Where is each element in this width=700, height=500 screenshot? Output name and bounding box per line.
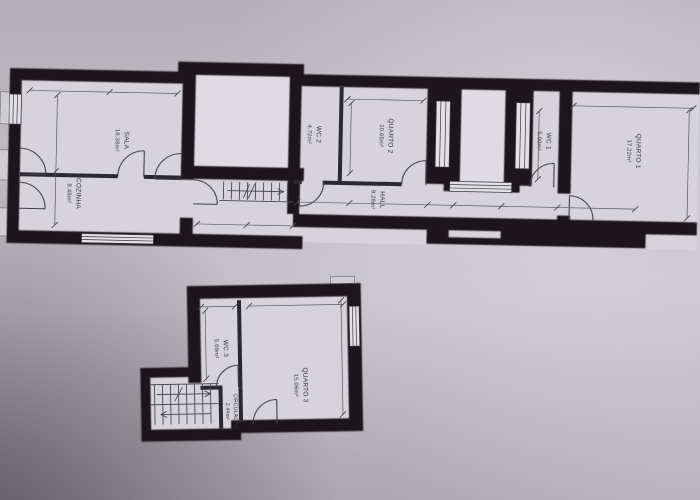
room-area-wc1: 5.00m² — [535, 131, 541, 151]
room-area-wc2: 4.72m² — [306, 124, 312, 144]
room-area-quarto1: 17.22m² — [625, 139, 631, 162]
room-area-wc3: 5.09m² — [213, 339, 219, 359]
room-area-hall: 9.28m² — [369, 190, 375, 210]
scanned-floor-plan-sheet: SALA 18.38m² COZINHA 8.48m² WC 2 4.72m² … — [0, 0, 700, 500]
room-name-sala: SALA — [122, 132, 129, 150]
room-name-hall: HALL — [378, 191, 385, 209]
floor-plan-drawing: SALA 18.38m² COZINHA 8.48m² WC 2 4.72m² … — [0, 0, 700, 500]
room-area-quarto3: 15.06m² — [292, 374, 298, 397]
upper-floor-plan: SALA 18.38m² COZINHA 8.48m² WC 2 4.72m² … — [0, 58, 700, 258]
room-area-quarto2: 10.65m² — [377, 124, 383, 147]
room-name-wc2: WC 2 — [315, 126, 322, 144]
room-name-wc1: WC 1 — [544, 133, 551, 151]
light-well — [460, 89, 508, 182]
lower-plan-interior — [139, 283, 364, 442]
room-name-circulacao: CIRCULAÇÃO — [232, 394, 240, 429]
room-area-cozinha: 8.48m² — [65, 183, 71, 203]
room-area-sala: 18.38m² — [113, 129, 119, 152]
room-name-cozinha: COZINHA — [74, 178, 82, 210]
room-area-circulacao: 2.44m² — [224, 403, 230, 420]
room-name-wc3: WC 3 — [222, 340, 229, 358]
courtyard-void — [194, 74, 290, 168]
room-name-quarto1: QUARTO 1 — [634, 134, 642, 169]
room-name-quarto3: QUARTO 3 — [301, 367, 309, 402]
room-name-quarto2: QUARTO 2 — [386, 118, 394, 153]
lower-floor-plan: WC 3 5.09m² QUARTO 3 15.06m² CIRCULAÇÃO … — [139, 276, 364, 442]
